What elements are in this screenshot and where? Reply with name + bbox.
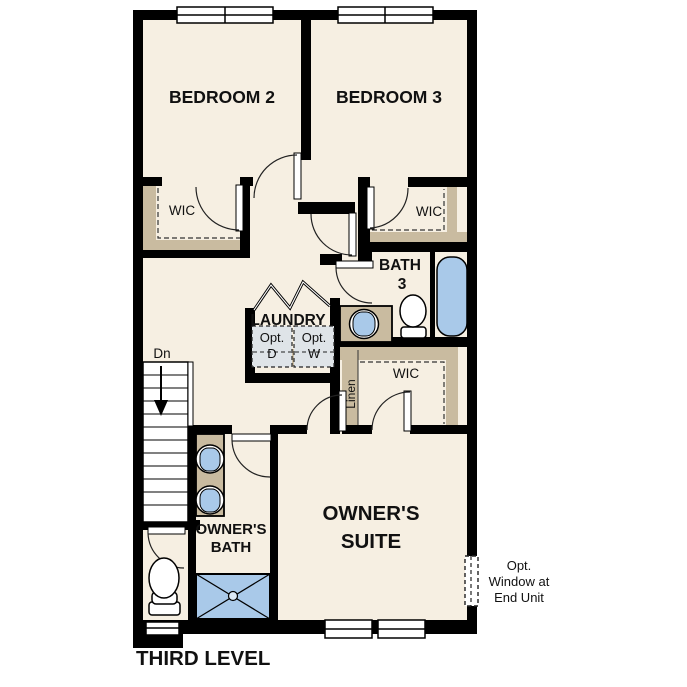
wall-wic3-top [408,177,467,187]
owners-sink1 [200,448,220,471]
owners-toilet [149,558,180,615]
wall-bed2-south-stub [133,177,162,186]
floor-plan-drawing: BEDROOM 2 BEDROOM 3 WIC WIC BATH 3 LAUND… [0,0,687,687]
label-owners-wic: WIC [393,366,419,381]
label-linen: Linen [344,379,358,408]
door-leaf-owners-wic [404,391,411,431]
bath3-toilet [400,295,426,338]
label-laundry: LAUNDRY [250,312,326,329]
floor-plan-page: BEDROOM 2 BEDROOM 3 WIC WIC BATH 3 LAUND… [0,0,687,687]
wall-wic2-bottom [133,250,250,258]
label-owners-bath-line1: OWNER'S [195,521,266,538]
label-bath3-line1: BATH [379,257,421,274]
window-bedroom2 [177,7,273,23]
wall-owic-bottom-right [410,425,467,434]
bathtub [437,257,467,336]
label-opt-window-line2: Window at [489,574,550,589]
wall-bed3-south [298,202,355,214]
label-opt-washer-line1: Opt. [302,330,327,345]
wic3-shelf-right [447,187,457,232]
label-opt-washer-line2: W [308,346,321,361]
owners-wic-shelf-right [446,358,458,428]
optional-window-symbol [465,556,478,606]
label-wic-bedroom3: WIC [416,204,442,219]
door-leaf-bedroom2 [294,153,301,199]
door-leaf-wic3 [367,187,374,229]
label-opt-dryer-line2: D [267,346,276,361]
wall-tub-divider [430,252,435,338]
label-opt-window-line1: Opt. [507,558,532,573]
label-opt-dryer-line1: Opt. [260,330,285,345]
staircase [143,362,193,522]
wall-bedroom-divider [301,20,311,160]
label-bath3-line2: 3 [398,276,407,293]
window-suite-left [325,620,372,638]
label-opt-window-line3: End Unit [494,590,544,605]
label-wic-bedroom2: WIC [169,203,195,218]
wic2-shelf-bottom [143,240,240,250]
stair-run [143,362,188,522]
label-stairs-down: Dn [153,346,170,361]
label-owners-suite-line1: OWNER'S [322,502,419,525]
shower [196,574,270,619]
door-leaf-owners-bath [232,434,271,441]
window-suite-right [378,620,425,638]
stair-rail [188,362,193,426]
wall-exterior-right [467,10,477,634]
wall-wic3-bottom [358,242,467,252]
door-leaf-bath3 [336,261,373,268]
wall-exterior-left [133,10,143,648]
label-level-title: THIRD LEVEL [136,647,270,670]
door-leaf-bedroom3 [349,213,356,256]
door-leaf-toilet-nook [148,527,185,534]
wic3-shelf-bottom [370,232,467,242]
label-owners-suite-line2: SUITE [341,530,401,553]
wall-obath-suite-divider [270,425,278,620]
label-bedroom2: BEDROOM 2 [169,87,275,107]
wall-laundry-bottom [245,373,340,383]
owners-sink2 [200,489,220,512]
bath3-sink [353,312,375,336]
label-bedroom3: BEDROOM 3 [336,87,442,107]
door-leaf-wic2 [236,185,243,231]
window-bedroom3 [338,7,433,23]
label-owners-bath-line2: BATH [211,539,252,556]
window-bath-small [146,622,179,635]
